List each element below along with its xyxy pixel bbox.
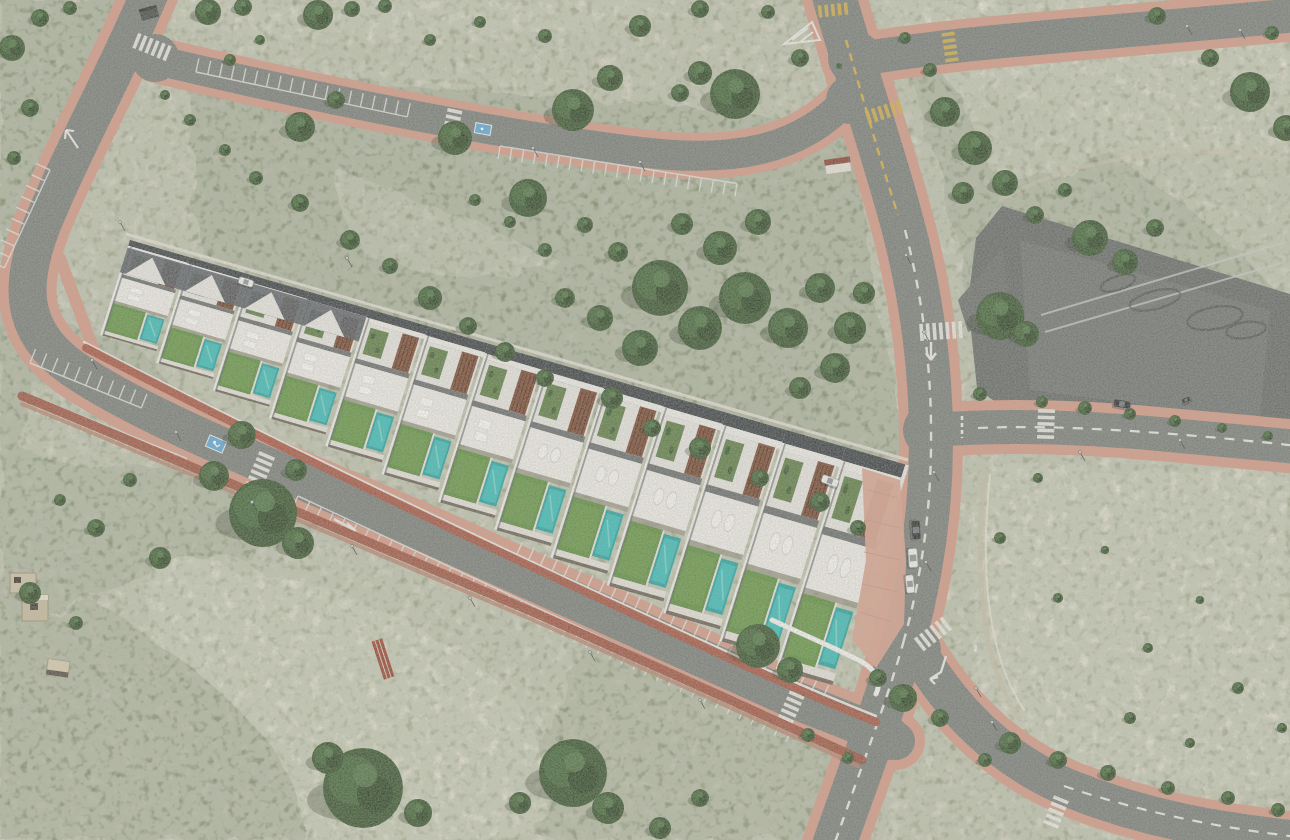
photo-grain — [0, 0, 1290, 840]
aerial-photo-stage — [0, 0, 1290, 840]
aerial-photo — [0, 0, 1290, 840]
